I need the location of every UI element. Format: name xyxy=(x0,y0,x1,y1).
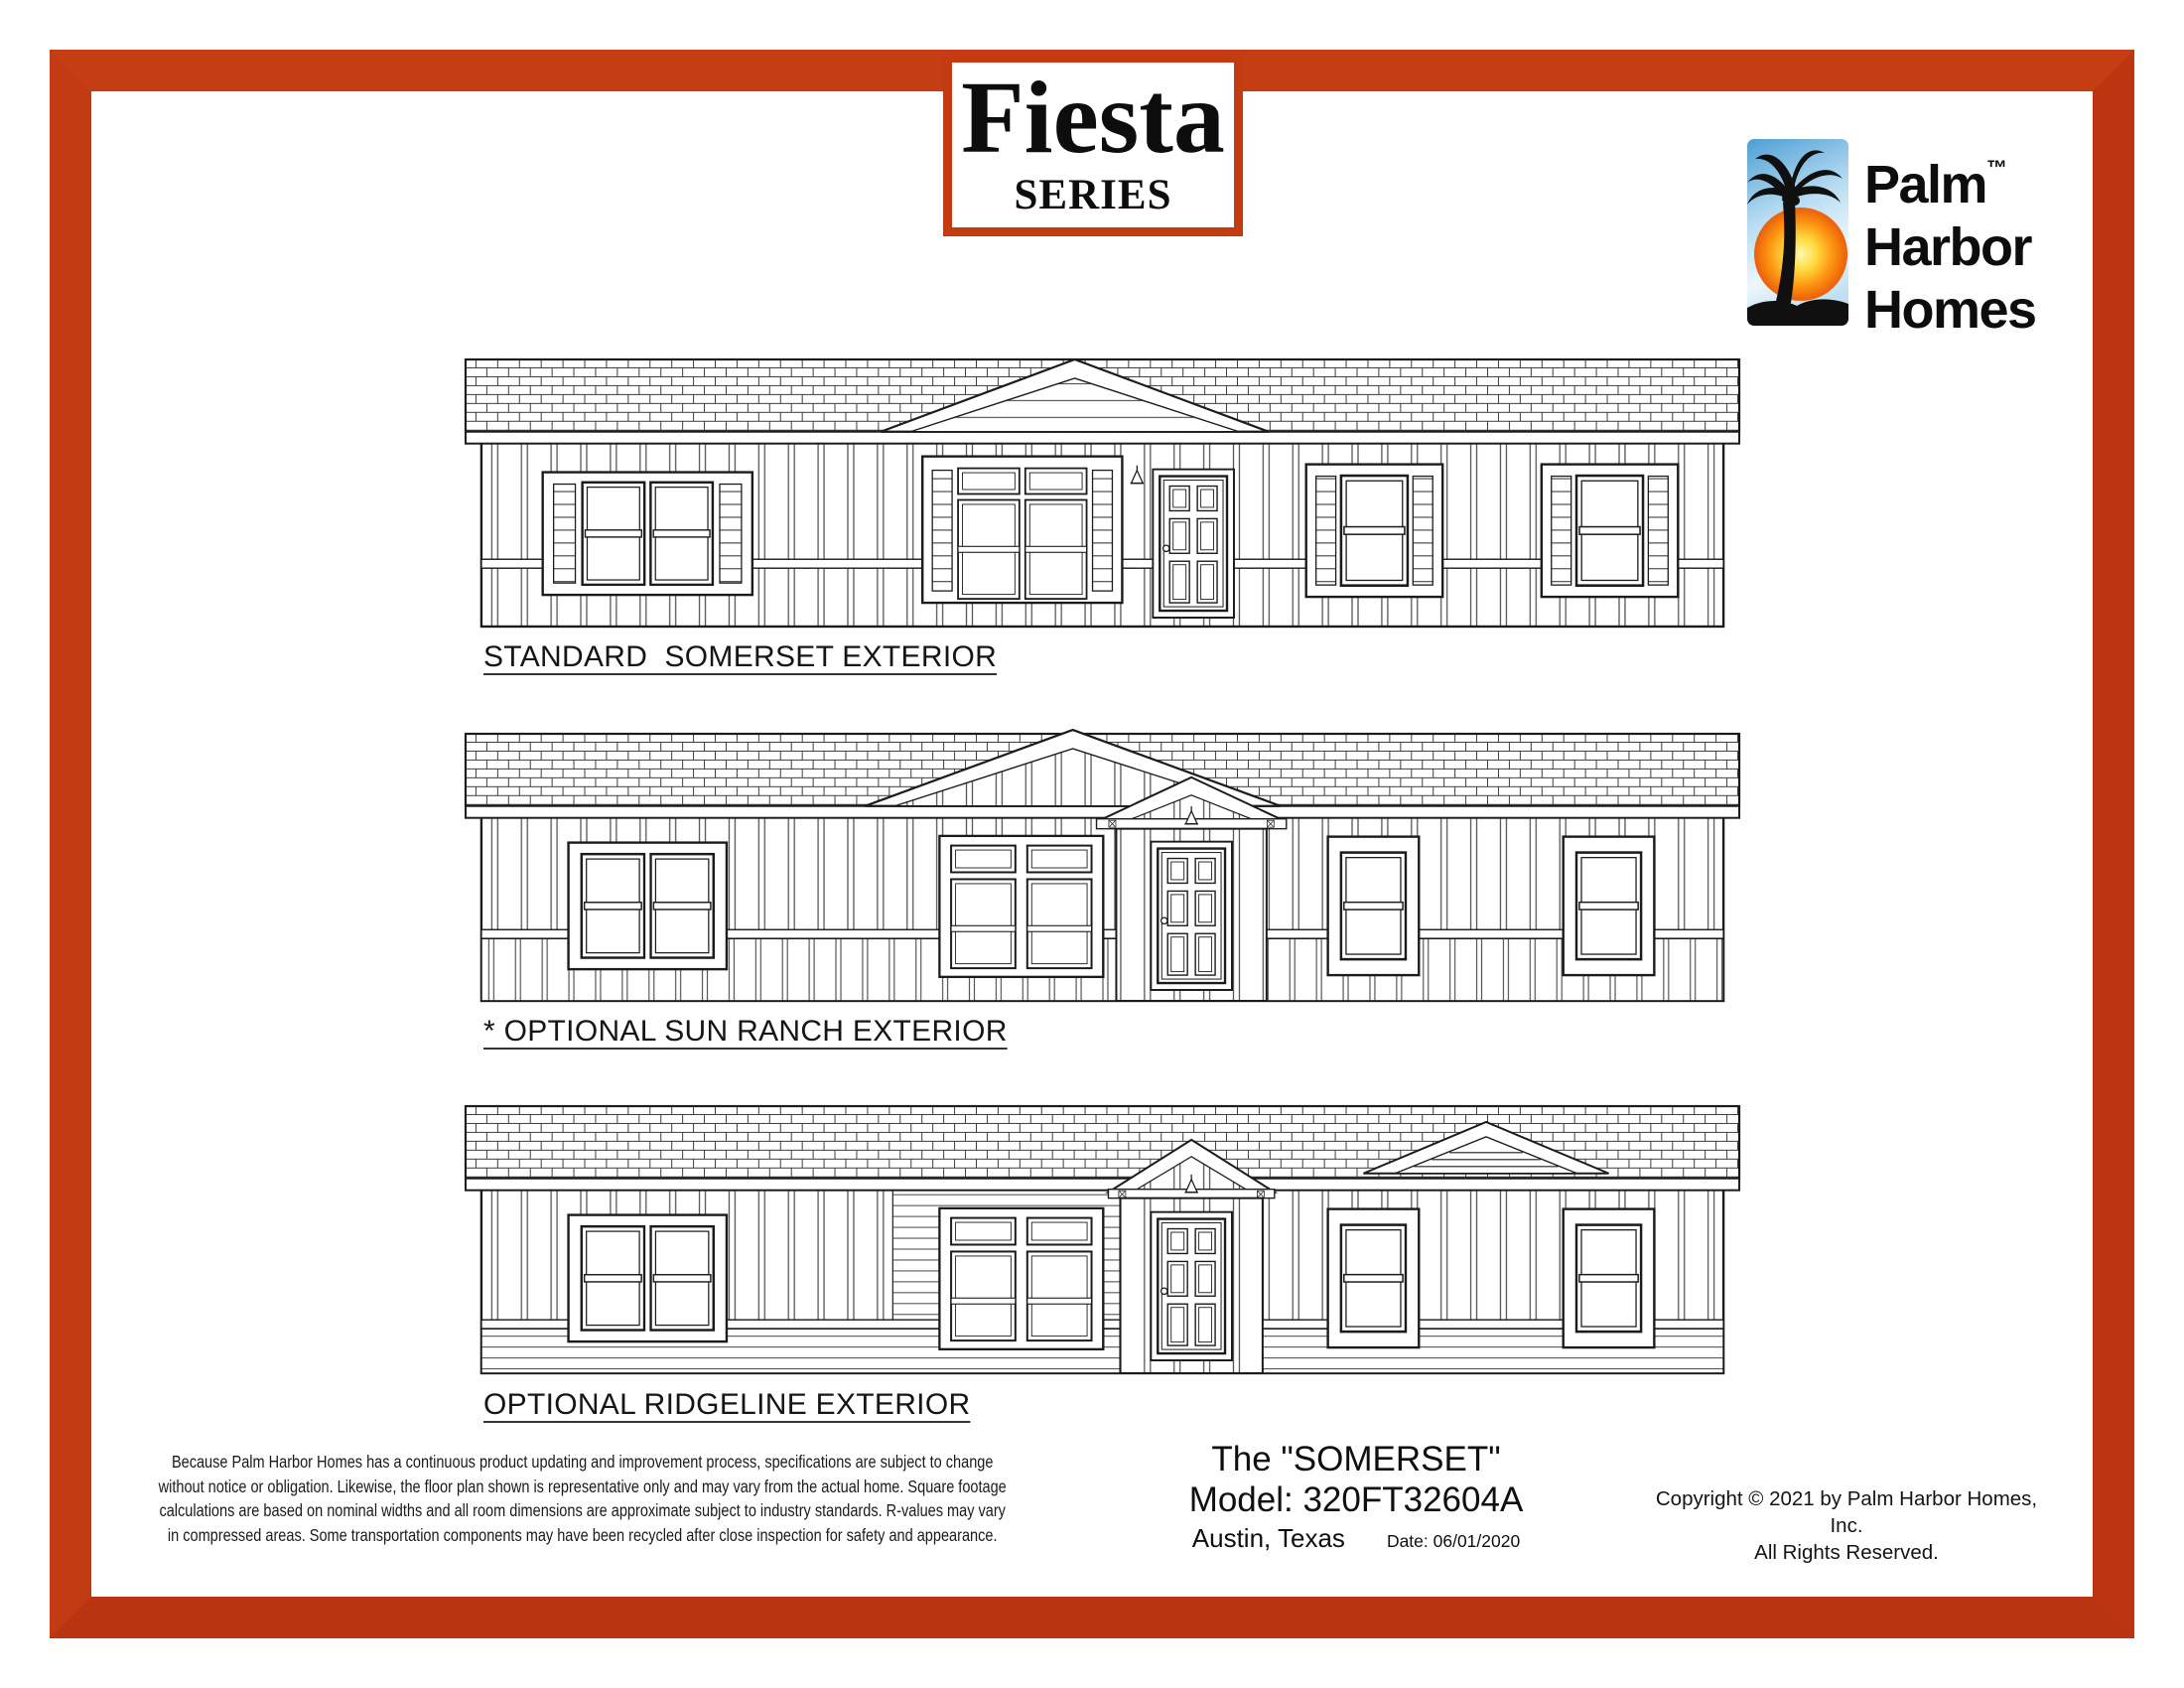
elevation-label-ridgeline: OPTIONAL RIDGELINE EXTERIOR xyxy=(483,1388,970,1422)
window-pair-left xyxy=(569,843,727,970)
window-right-2 xyxy=(1564,1209,1655,1347)
window-right-1 xyxy=(1328,837,1420,975)
window-right-1 xyxy=(1328,1209,1420,1347)
disclaimer-line: without notice or obligation. Likewise, … xyxy=(137,1475,1027,1499)
picture-window xyxy=(939,836,1103,977)
series-name: Fiesta xyxy=(961,70,1225,166)
elevation-drawing-sun-ranch xyxy=(460,724,1745,1011)
picture-window xyxy=(939,1208,1103,1349)
model-info: The "SOMERSET" Model: 320FT32604A Austin… xyxy=(1140,1439,1572,1554)
window-right-1 xyxy=(1306,465,1442,597)
model-date: Date: 06/01/2020 xyxy=(1387,1531,1520,1552)
palm-tree-sunset-icon xyxy=(1745,137,1850,328)
entry-door xyxy=(1151,842,1232,990)
brand-wordmark: Palm™ Harbor Homes xyxy=(1864,137,2036,342)
brand-logo: Palm™ Harbor Homes xyxy=(1745,137,2036,342)
series-badge: Fiesta SERIES xyxy=(943,54,1243,236)
brand-word-harbor: Harbor xyxy=(1864,216,2036,279)
elevation-label-sun-ranch: * OPTIONAL SUN RANCH EXTERIOR xyxy=(483,1015,1008,1049)
trademark-symbol: ™ xyxy=(1986,157,2007,180)
disclaimer-line: in compressed areas. Some transportation… xyxy=(137,1523,1027,1548)
entry-door xyxy=(1153,470,1234,618)
elevation-label-standard-somerset: STANDARD SOMERSET EXTERIOR xyxy=(483,640,997,674)
elevation-drawing-standard-somerset xyxy=(460,350,1745,636)
window-right-2 xyxy=(1564,837,1655,975)
copyright-line-2: All Rights Reserved. xyxy=(1650,1539,2043,1566)
copyright-text: Copyright © 2021 by Palm Harbor Homes, I… xyxy=(1650,1485,2043,1566)
disclaimer-text: Because Palm Harbor Homes has a continuo… xyxy=(137,1450,1027,1547)
brand-word-homes: Homes xyxy=(1864,279,2036,342)
model-title: The "SOMERSET" xyxy=(1140,1439,1572,1479)
window-pair-left xyxy=(543,473,752,596)
brochure-page: Fiesta SERIES xyxy=(0,0,2184,1688)
elevation-drawing-ridgeline xyxy=(460,1096,1745,1383)
model-location: Austin, Texas xyxy=(1192,1523,1345,1554)
model-number: Model: 320FT32604A xyxy=(1140,1479,1572,1520)
entry-door xyxy=(1151,1212,1232,1360)
window-pair-left xyxy=(569,1215,727,1342)
copyright-line-1: Copyright © 2021 by Palm Harbor Homes, I… xyxy=(1650,1485,2043,1539)
series-subtitle: SERIES xyxy=(1015,171,1172,219)
brand-word-palm: Palm xyxy=(1864,155,1986,214)
disclaimer-line: Because Palm Harbor Homes has a continuo… xyxy=(137,1450,1027,1475)
picture-window xyxy=(922,457,1122,603)
disclaimer-line: calculations are based on nominal widths… xyxy=(137,1498,1027,1523)
window-right-2 xyxy=(1542,465,1678,597)
